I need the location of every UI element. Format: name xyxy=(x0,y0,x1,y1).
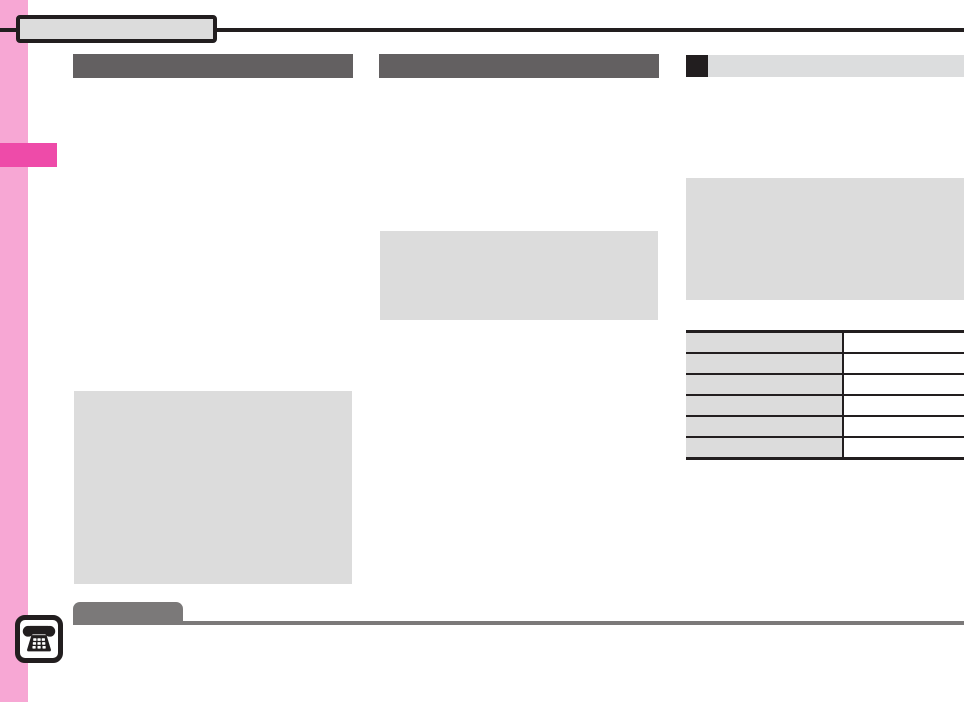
column2-content-box xyxy=(380,231,658,320)
table-cell-label xyxy=(686,333,844,352)
notice-rule xyxy=(180,621,964,625)
table-cell-value xyxy=(844,333,964,352)
table-row xyxy=(686,396,964,417)
table-cell-label xyxy=(686,354,844,373)
table-cell-value xyxy=(844,417,964,436)
phone-icon xyxy=(15,615,63,663)
column3-subsection-bar xyxy=(708,55,964,77)
column3-content-box xyxy=(686,178,964,300)
table-cell-label xyxy=(686,375,844,394)
table-cell-value xyxy=(844,354,964,373)
spec-table xyxy=(686,330,964,460)
table-row xyxy=(686,333,964,354)
column1-section-header xyxy=(73,54,353,78)
table-cell-label xyxy=(686,417,844,436)
table-row xyxy=(686,354,964,375)
table-row xyxy=(686,438,964,457)
table-row xyxy=(686,375,964,396)
table-cell-label xyxy=(686,438,844,457)
sidebar-chapter-tab xyxy=(0,143,57,167)
column3-bullet-square xyxy=(686,55,708,77)
column1-content-box xyxy=(74,391,352,584)
notice-tab xyxy=(73,602,183,625)
sidebar-accent-bar xyxy=(0,0,28,702)
table-cell-value xyxy=(844,375,964,394)
manual-page xyxy=(0,0,964,702)
table-cell-value xyxy=(844,438,964,457)
table-cell-label xyxy=(686,396,844,415)
column2-section-header xyxy=(379,54,659,78)
page-title-box xyxy=(16,15,217,43)
table-cell-value xyxy=(844,396,964,415)
table-row xyxy=(686,417,964,438)
